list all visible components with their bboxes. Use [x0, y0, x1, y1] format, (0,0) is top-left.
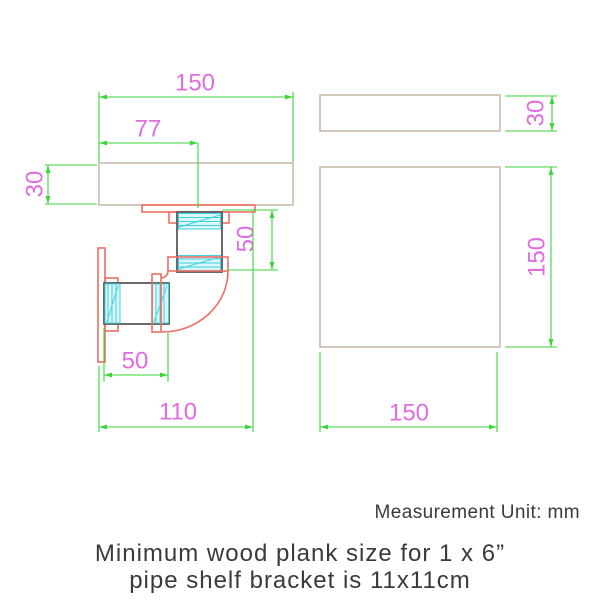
dimension-plank-thickness: 30	[22, 165, 98, 204]
dimension-text-topview-thickness: 30	[523, 100, 550, 127]
dimension-text-topview-depth: 150	[524, 237, 551, 277]
dimension-text-vertical-pipe: 50	[233, 226, 260, 253]
measurement-unit-note: Measurement Unit: mm	[375, 502, 580, 524]
dimension-topview-depth: 150	[505, 167, 557, 347]
dimension-text-plank-thickness: 30	[22, 171, 49, 198]
vertical-pipe-thread-top	[179, 214, 221, 230]
elbow-outer-arc	[162, 271, 228, 332]
dimension-text-topview-width: 150	[389, 400, 429, 427]
wood-plank-top-outline	[320, 167, 500, 347]
dimension-text-bracket-depth: 110	[159, 399, 197, 426]
dimension-text-flange-offset: 77	[135, 116, 162, 143]
dimension-horizontal-pipe: 50	[104, 328, 168, 382]
caption: Minimum wood plank size for 1 x 6” pipe …	[0, 540, 600, 594]
caption-line-2: pipe shelf bracket is 11x11cm	[0, 567, 600, 594]
top-view: 30 150 150	[320, 95, 557, 432]
dimension-flange-offset: 77	[99, 116, 198, 209]
wood-plank-edge-outline	[320, 95, 500, 131]
cad-drawing-page: 150 77 30 50	[0, 0, 600, 600]
wood-plank-side-outline	[99, 163, 293, 205]
dimension-vertical-pipe: 50	[222, 210, 278, 270]
dimension-text-horizontal-pipe: 50	[122, 348, 149, 375]
dimension-text-plank-width: 150	[175, 70, 215, 97]
dimension-topview-thickness: 30	[505, 96, 557, 131]
horizontal-pipe-thread-left	[105, 284, 120, 323]
side-view: 150 77 30 50	[22, 70, 294, 433]
dimension-plank-width: 150	[99, 70, 293, 163]
elbow-inner-arc	[161, 271, 168, 278]
caption-line-1: Minimum wood plank size for 1 x 6”	[0, 540, 600, 567]
dimension-topview-width: 150	[320, 352, 497, 432]
